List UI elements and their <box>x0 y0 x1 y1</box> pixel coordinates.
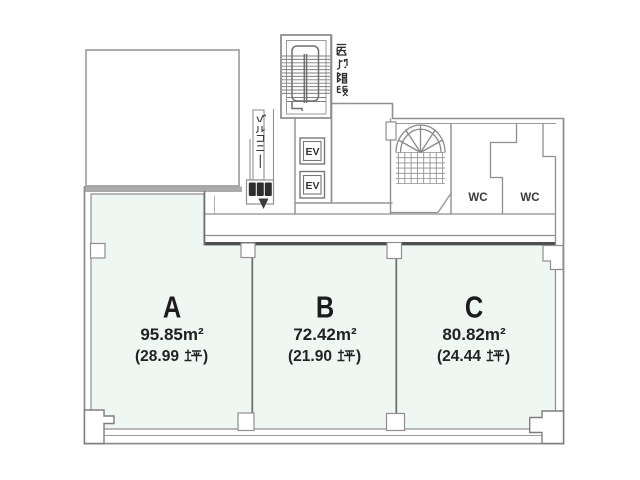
svg-text:WC: WC <box>468 192 487 204</box>
svg-text:(28.99: (28.99 <box>135 348 179 365</box>
svg-text:A: A <box>163 290 181 325</box>
svg-text:(24.44: (24.44 <box>437 348 481 365</box>
svg-text:WC: WC <box>520 192 539 204</box>
svg-text:EV: EV <box>305 180 319 192</box>
svg-text:EV: EV <box>305 146 319 158</box>
svg-text:(21.90: (21.90 <box>288 348 332 365</box>
svg-text:): ) <box>505 348 510 365</box>
svg-text:80.82m²: 80.82m² <box>442 325 506 344</box>
svg-text:C: C <box>465 290 483 325</box>
svg-text:72.42m²: 72.42m² <box>293 325 357 344</box>
svg-text:95.85m²: 95.85m² <box>140 325 204 344</box>
svg-text:): ) <box>356 348 361 365</box>
svg-text:B: B <box>316 290 334 325</box>
svg-text:): ) <box>203 348 208 365</box>
